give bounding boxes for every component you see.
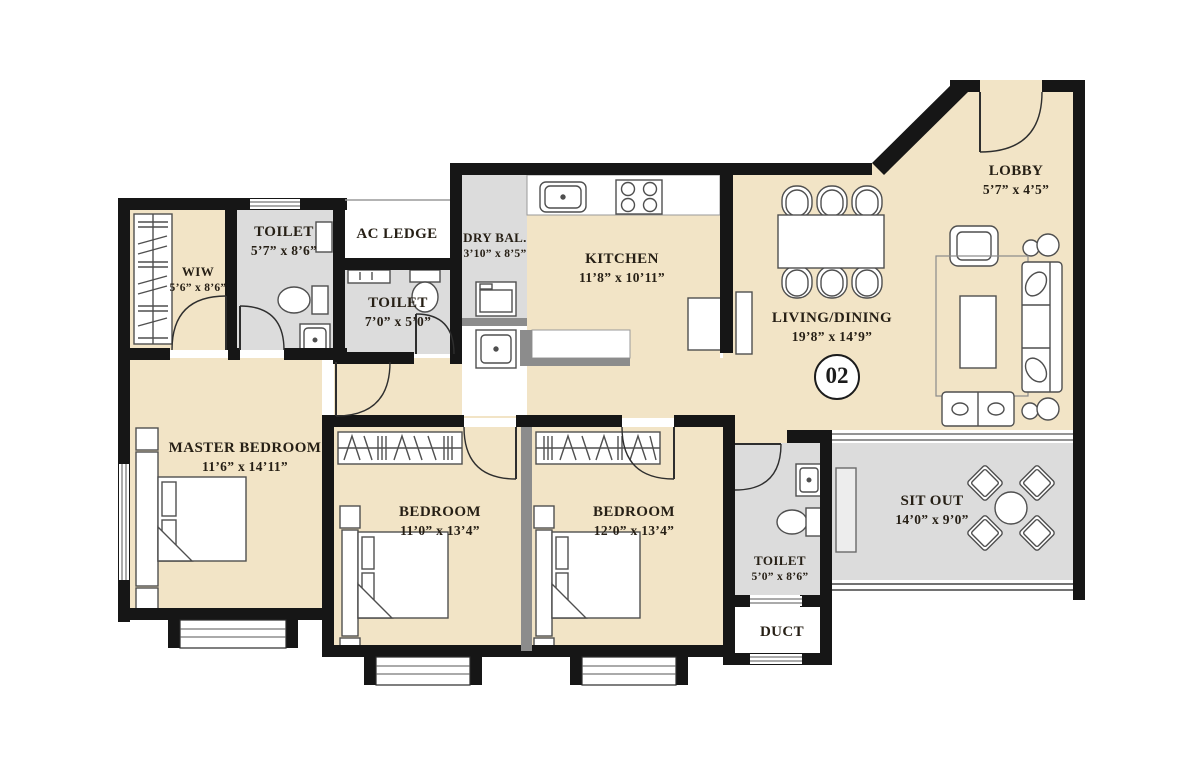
room-label-toilet-upper: TOILET 7’0” x 5’0”	[365, 294, 431, 330]
wc-icon	[777, 510, 807, 534]
room-label-sit-out: SIT OUT 14’0” x 9’0”	[895, 492, 968, 528]
room-label-duct: DUCT	[760, 623, 804, 642]
coffee-table-icon	[960, 296, 996, 368]
planter-icon	[836, 468, 856, 552]
dining-set-icon	[778, 186, 884, 298]
window-toilet-master-top	[250, 199, 300, 209]
side-table-icon	[1037, 234, 1059, 256]
window-master-bottom	[168, 620, 298, 648]
side-table-icon	[1022, 403, 1038, 419]
utility-sink-icon	[476, 330, 516, 368]
room-floor-corridor	[334, 358, 735, 418]
wardrobe-icon-wiw	[134, 214, 172, 344]
half-wall	[520, 358, 630, 366]
armchair-icon	[950, 226, 998, 266]
half-wall-bedroom-divider	[521, 427, 532, 651]
kitchen-sink-icon	[540, 182, 586, 212]
sofa-icon	[1021, 262, 1062, 392]
window-master-left	[119, 464, 129, 580]
shelf-icon	[316, 222, 332, 252]
shelf-icon	[348, 270, 390, 283]
railing-sitout-bottom	[832, 580, 1073, 592]
room-label-ac-ledge: AC LEDGE	[356, 225, 437, 244]
room-label-bedroom3: BEDROOM 12’0” x 13’4”	[593, 503, 675, 539]
wc-tank-icon	[410, 270, 440, 282]
stove-icon	[616, 180, 662, 214]
room-label-kitchen: KITCHEN 11’8” x 10’11”	[579, 250, 665, 286]
room-label-master-bedroom: MASTER BEDROOM 11’6” x 14’11”	[169, 439, 322, 475]
wc-icon	[278, 287, 310, 313]
window-bedroom3-bottom	[570, 657, 688, 685]
room-label-bedroom2: BEDROOM 11’0” x 13’4”	[399, 503, 481, 539]
floor-plan-canvas	[0, 0, 1200, 781]
room-label-lobby: LOBBY 5’7” x 4’5”	[983, 162, 1049, 198]
kitchen-counter-lower	[532, 330, 630, 358]
sliding-door-sitout	[832, 430, 1073, 443]
window-bedroom2-bottom	[364, 657, 482, 685]
wc-tank-icon	[312, 286, 328, 314]
side-table-icon	[1037, 398, 1059, 420]
wardrobe-icon-bedroom2	[338, 432, 462, 464]
apartment-floor-plan: LOBBY 5’7” x 4’5” LIVING/DINING 19’8” x …	[0, 0, 1200, 781]
wardrobe-icon-bedroom3	[536, 432, 660, 464]
unit-number-badge: 02	[814, 354, 860, 400]
washing-unit-icon	[476, 282, 516, 316]
room-label-dry-balcony: DRY BAL. 3’10” x 8’5”	[463, 230, 527, 261]
room-label-living-dining: LIVING/DINING 19’8” x 14’9”	[772, 309, 892, 345]
room-label-wiw: WIW 5’6” x 8’6”	[170, 264, 227, 295]
room-label-toilet-lower: TOILET 5’0” x 8’6”	[752, 553, 809, 584]
room-label-toilet-master: TOILET 5’7” x 8’6”	[251, 223, 317, 259]
loveseat-icon	[942, 392, 1014, 426]
wc-tank-icon	[806, 508, 822, 536]
living-shelf-icon	[736, 292, 752, 354]
half-wall	[462, 318, 527, 326]
